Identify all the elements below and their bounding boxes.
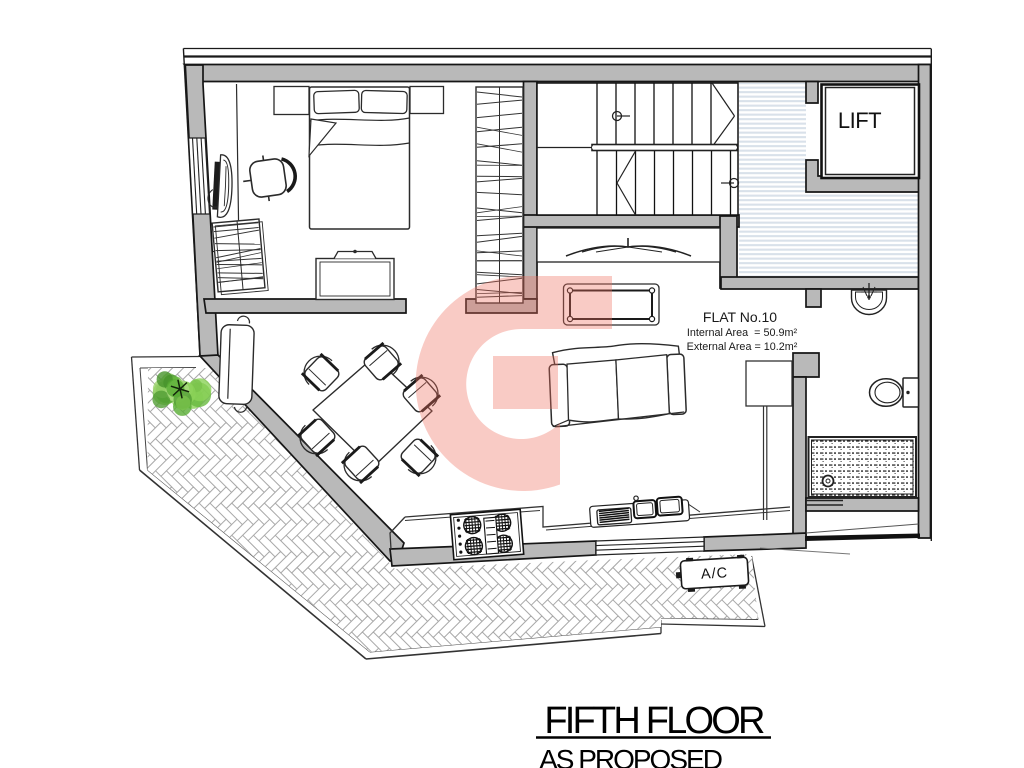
svg-text:External Area = 10.2m²: External Area = 10.2m² <box>687 341 798 353</box>
svg-text:Internal Area = 50.9m²: Internal Area = 50.9m² <box>687 327 798 339</box>
svg-text:LIFT: LIFT <box>838 108 881 133</box>
svg-text:AS PROPOSED: AS PROPOSED <box>539 744 722 768</box>
svg-text:A/C: A/C <box>701 565 729 583</box>
svg-text:FLAT No.10: FLAT No.10 <box>703 309 777 325</box>
svg-text:FIFTH FLOOR: FIFTH FLOOR <box>544 700 764 742</box>
